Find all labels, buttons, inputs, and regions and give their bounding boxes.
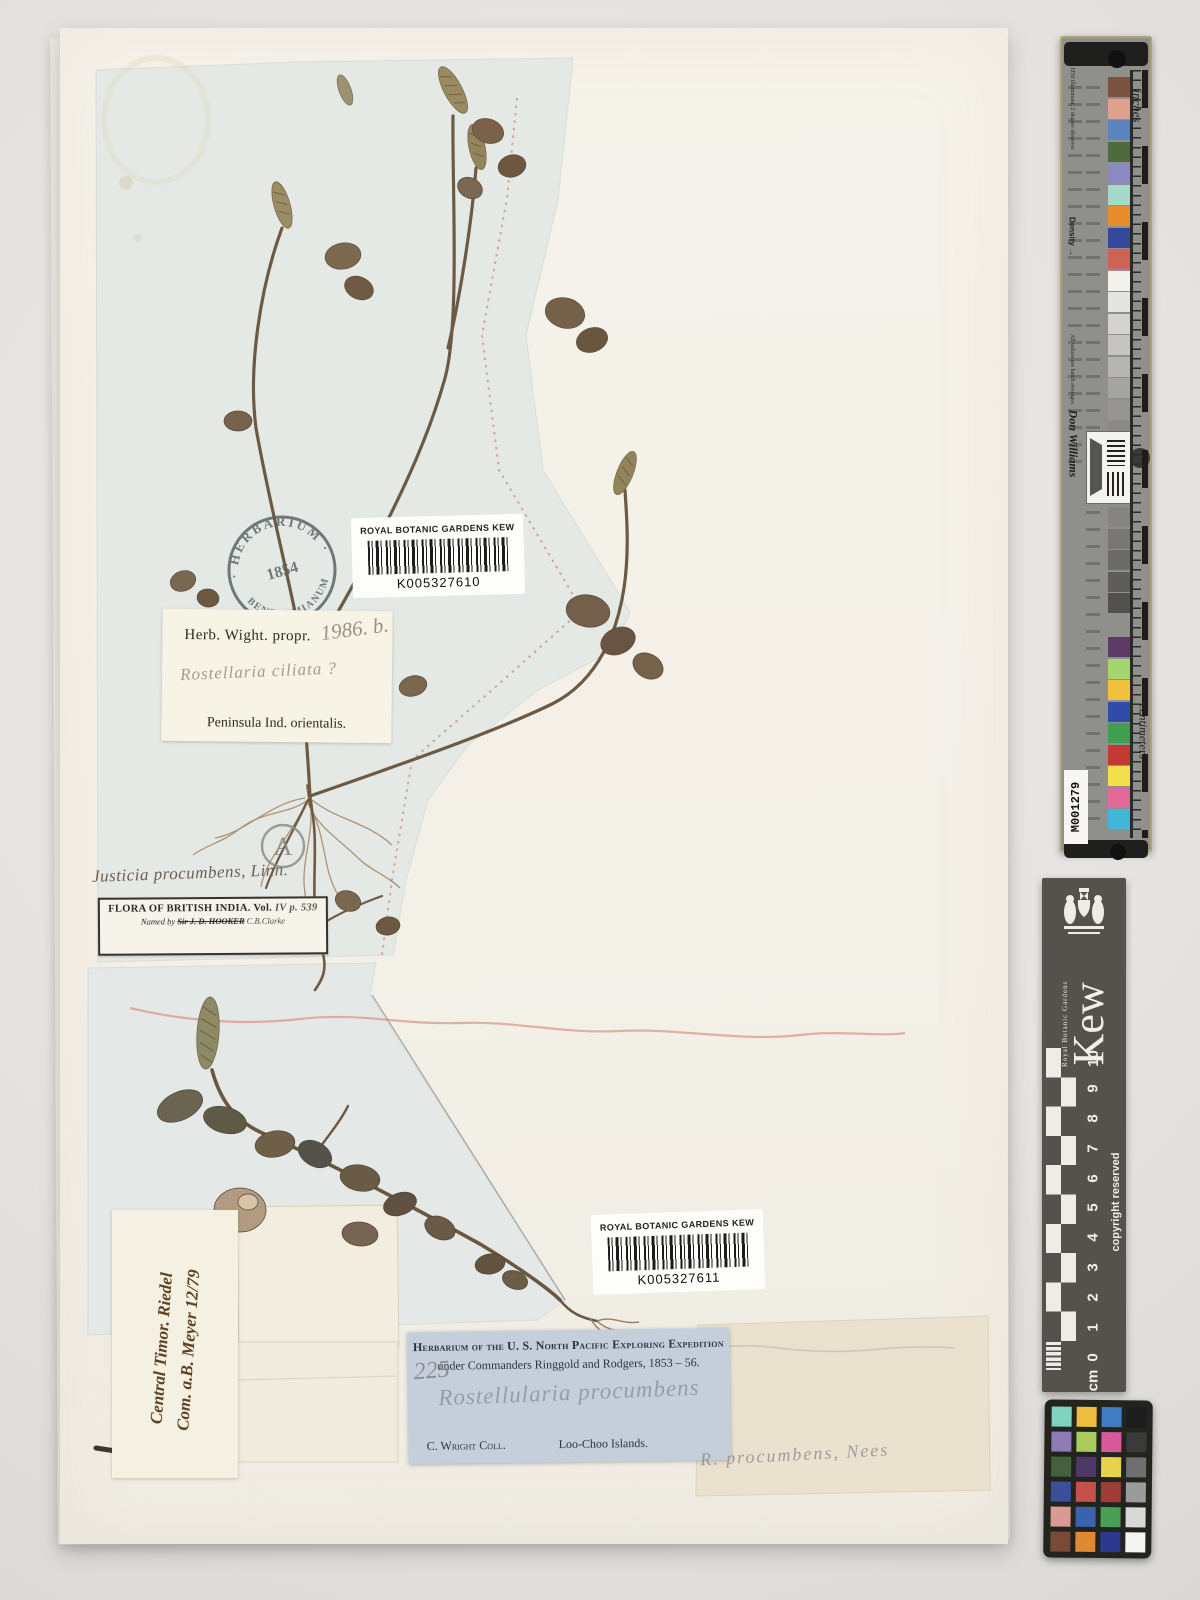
patch-column-middle — [1108, 507, 1130, 615]
barcode-stripes — [607, 1233, 748, 1272]
checker-patch — [1076, 1431, 1096, 1451]
checker-patch — [1126, 1457, 1146, 1477]
cm-number: 4 — [1085, 1234, 1102, 1242]
kew-scale-bar: Royal Botanic Gardens Kew copyright rese… — [1042, 878, 1126, 1392]
checker-patch — [1126, 1432, 1146, 1452]
wight-label: Herb. Wight. propr. 1986. b. Rostellaria… — [161, 609, 392, 743]
color-patch — [1108, 809, 1130, 829]
wight-title: Herb. Wight. propr. — [184, 627, 311, 645]
checker-patch — [1100, 1482, 1120, 1502]
color-patch — [1108, 120, 1130, 140]
checker-patch — [1051, 1406, 1071, 1426]
checker-patch — [1125, 1532, 1145, 1552]
cm-checker-inner — [1061, 1048, 1076, 1370]
color-patch — [1108, 680, 1130, 700]
checker-patch — [1125, 1482, 1145, 1502]
color-patch — [1108, 99, 1130, 119]
checker-patch — [1076, 1456, 1096, 1476]
color-patch — [1108, 228, 1130, 248]
calibration-card: inches D50 illuminant, 2 degree observer… — [1060, 36, 1152, 852]
ruler-ticks — [1133, 70, 1141, 838]
checker-patch — [1101, 1407, 1121, 1427]
herbarium-scan: { "sheet": { "stamp": {"top": "· HERBARI… — [0, 0, 1200, 1600]
checker-patch — [1051, 1431, 1071, 1451]
patch-column-lower — [1108, 637, 1130, 831]
expedition-label: Herbarium of the U. S. North Pacific Exp… — [407, 1328, 731, 1464]
card-end-cap-top — [1064, 42, 1148, 66]
color-patch — [1108, 550, 1130, 570]
cm-number: 1 — [1085, 1323, 1102, 1331]
color-patch — [1108, 659, 1130, 679]
cm-number: 7 — [1085, 1144, 1102, 1152]
ruler-blocks — [1142, 70, 1148, 838]
barcode-title: ROYAL BOTANIC GARDENS KEW — [357, 522, 517, 536]
cm-number: 9 — [1085, 1084, 1102, 1092]
color-patch — [1108, 572, 1130, 592]
barcode-label-top: ROYAL BOTANIC GARDENS KEW K005327610 — [351, 514, 525, 598]
wight-locality: Peninsula Ind. orientalis. — [161, 715, 391, 733]
card-hole-bottom — [1110, 844, 1126, 860]
flora-label: FLORA OF BRITISH INDIA. Vol. IV p. 539 N… — [98, 896, 328, 956]
wight-species-handwritten: Rostellaria ciliata ? — [180, 659, 338, 686]
target-bars — [1107, 440, 1125, 466]
micro-text-column — [1068, 86, 1082, 466]
cm-number: 10 — [1085, 1050, 1102, 1067]
color-patch — [1108, 507, 1130, 527]
royal-crest-icon — [1062, 886, 1106, 940]
checker-patch — [1125, 1507, 1145, 1527]
color-patch — [1108, 142, 1130, 162]
resolution-target — [1087, 432, 1130, 503]
color-patch — [1108, 314, 1130, 334]
checker-patch — [1101, 1457, 1121, 1477]
color-patch — [1108, 271, 1130, 291]
checker-patch — [1075, 1531, 1095, 1551]
expedition-number-handwritten: 225 — [413, 1356, 451, 1386]
color-patch — [1108, 637, 1130, 657]
barcode-number: K005327610 — [359, 573, 519, 592]
color-patch — [1108, 185, 1130, 205]
copyright-text: copyright reserved — [1110, 1132, 1122, 1272]
target-bars — [1107, 472, 1125, 496]
mm-hatch — [1046, 1340, 1061, 1369]
cm-number: 6 — [1085, 1174, 1102, 1182]
flora-named-by: Named by — [141, 916, 175, 926]
expedition-subtitle: under Commanders Ringgold and Rodgers, 1… — [407, 1355, 729, 1374]
color-patch — [1108, 529, 1130, 549]
cm-number: 2 — [1085, 1293, 1102, 1301]
checker-patch — [1075, 1506, 1095, 1526]
cm-number: 8 — [1085, 1114, 1102, 1122]
expedition-collector: C. Wright Coll. — [427, 1438, 506, 1454]
color-patch — [1108, 766, 1130, 786]
patch-column-upper — [1108, 77, 1130, 443]
color-patch — [1108, 702, 1130, 722]
checker-patch — [1051, 1456, 1071, 1476]
annotation-letter: A — [274, 832, 293, 861]
cm-numbers: 109876543210 — [1080, 1050, 1106, 1366]
expedition-species-handwritten: Rostellularia procumbens — [408, 1374, 731, 1413]
color-patch — [1108, 163, 1130, 183]
cm-checker-outer — [1046, 1048, 1061, 1370]
stamp-year: 1854 — [265, 559, 300, 584]
flora-annotator-handwritten: C.B.Clarke — [247, 915, 285, 925]
cm-unit: cm — [1084, 1370, 1101, 1392]
barcode-label-bottom: ROYAL BOTANIC GARDENS KEW K005327611 — [591, 1209, 766, 1295]
card-hole-top — [1108, 50, 1126, 68]
cm-number: 3 — [1085, 1264, 1102, 1272]
checker-patch — [1100, 1507, 1120, 1527]
checker-patch — [1076, 1406, 1096, 1426]
cm-number: 5 — [1085, 1204, 1102, 1212]
timor-label: Central Timor. Riedel Com. a.B. Meyer 12… — [112, 1210, 238, 1478]
color-patch — [1108, 723, 1130, 743]
flora-title: FLORA OF BRITISH INDIA. — [108, 903, 251, 915]
id-code: M001279 — [1069, 769, 1083, 845]
checker-patch — [1075, 1481, 1095, 1501]
flora-named-struck: Sir J. D. HOOKER — [177, 916, 244, 926]
color-patch — [1108, 77, 1130, 97]
color-patch — [1108, 788, 1130, 808]
cm-number: 0 — [1085, 1353, 1102, 1361]
checker-patch — [1100, 1532, 1120, 1552]
color-patch — [1108, 357, 1130, 377]
id-label: M001279 — [1064, 770, 1088, 844]
expedition-locality: Loo-Choo Islands. — [559, 1436, 649, 1452]
checker-patch — [1050, 1481, 1070, 1501]
color-patch — [1108, 249, 1130, 269]
checker-patch — [1050, 1506, 1070, 1526]
checker-patch — [1126, 1407, 1146, 1427]
color-patch — [1108, 745, 1130, 765]
checker-patch — [1101, 1432, 1121, 1452]
expedition-title: Herbarium of the U. S. North Pacific Exp… — [407, 1336, 729, 1355]
color-patch — [1108, 206, 1130, 226]
checker-patch — [1050, 1531, 1070, 1551]
color-patch — [1108, 400, 1130, 420]
tan-paper — [696, 1316, 990, 1496]
barcode-stripes — [368, 537, 509, 575]
color-patch — [1108, 292, 1130, 312]
target-wedge — [1090, 438, 1102, 496]
color-patch — [1108, 593, 1130, 613]
flora-vol: Vol. — [253, 903, 272, 914]
barcode-title: ROYAL BOTANIC GARDENS KEW — [597, 1217, 757, 1233]
barcode-number: K005327611 — [599, 1268, 759, 1289]
wight-number-handwritten: 1986. b. — [319, 613, 390, 647]
flora-vol-handwritten: IV p. 539 — [275, 902, 318, 913]
color-patch — [1108, 378, 1130, 398]
color-patch — [1108, 335, 1130, 355]
blank-label-papers — [230, 1205, 399, 1462]
color-checker-card — [1043, 1399, 1153, 1558]
